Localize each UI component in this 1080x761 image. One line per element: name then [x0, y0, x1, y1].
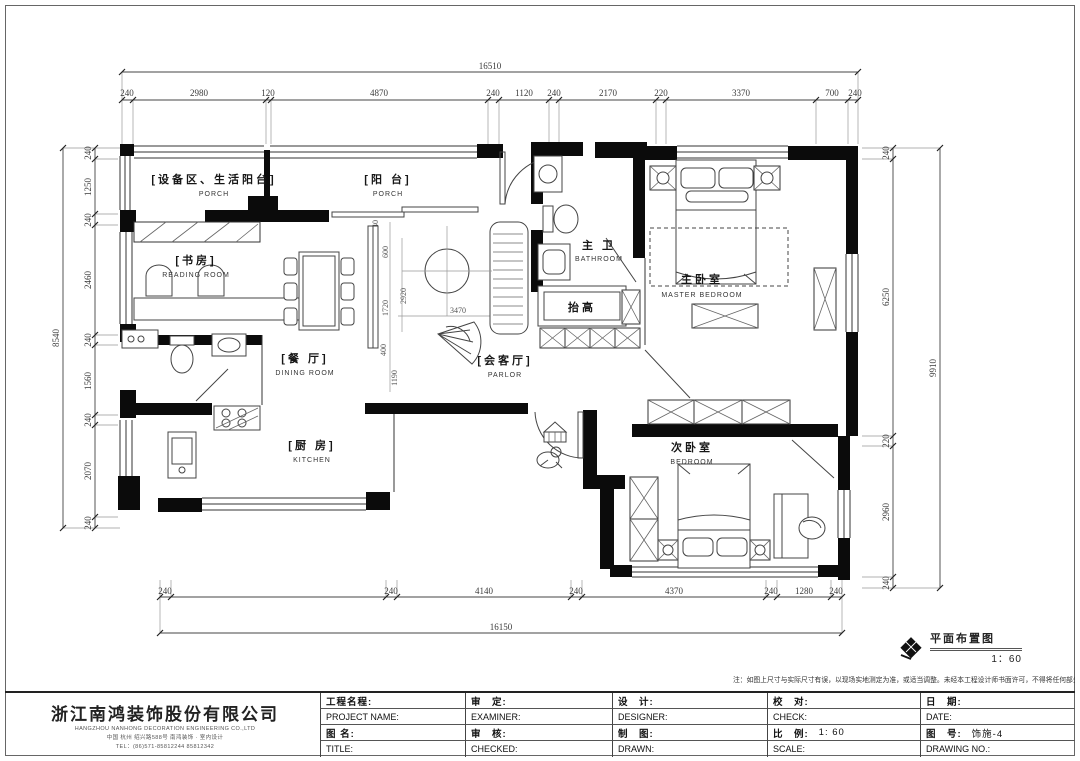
field-drawing-no-value: 饰施-4 [972, 726, 1003, 740]
svg-text:2070: 2070 [83, 462, 93, 481]
svg-text:240: 240 [83, 213, 93, 227]
svg-text:PORCH: PORCH [199, 191, 229, 198]
svg-text:1280: 1280 [795, 586, 814, 596]
master-south-cabinets [648, 400, 790, 424]
svg-text:240: 240 [881, 576, 891, 590]
svg-text:1120: 1120 [515, 88, 533, 98]
dim-total-bottom: 16150 [490, 622, 513, 632]
svg-text:240: 240 [83, 413, 93, 427]
svg-text:240: 240 [120, 88, 134, 98]
sofa [490, 222, 528, 334]
second-bedroom-desk [774, 494, 825, 558]
dim-total-left: 8540 [51, 329, 61, 348]
second-bedroom-wardrobe [630, 477, 658, 561]
storage-x-row [540, 328, 640, 348]
label-kitchen: [厨 房] [288, 438, 335, 452]
field-drawing-no-label: 图 号: [926, 726, 962, 740]
label-master-bath: 主 卫 [582, 238, 616, 252]
label-second-bedroom: 次卧室 [671, 440, 713, 454]
svg-text:120: 120 [261, 88, 275, 98]
svg-text:1250: 1250 [83, 178, 93, 197]
master-side-cabinet [814, 268, 836, 330]
company-block: 浙江南鸿装饰股份有限公司 HANGZHOU NANHONG DECORATION… [5, 693, 320, 757]
raised-platform [538, 286, 640, 348]
second-bed [678, 464, 750, 568]
field-proofread-cn: 校 对: [767, 693, 920, 709]
svg-text:240: 240 [848, 88, 862, 98]
svg-text:240: 240 [83, 333, 93, 347]
svg-text:BATHROOM: BATHROOM [575, 256, 623, 263]
svg-text:PORCH: PORCH [373, 191, 403, 198]
svg-text:2920: 2920 [399, 288, 408, 304]
seal-icon [898, 634, 924, 660]
svg-text:240: 240 [384, 586, 398, 596]
plant-fan [438, 322, 481, 364]
svg-text:240: 240 [486, 88, 500, 98]
field-scale-label: 比 例: [773, 726, 809, 740]
label-parlor: [会客厅] [477, 353, 532, 367]
dining-table [284, 252, 354, 330]
field-designer-en: DESIGNER: [612, 709, 767, 725]
svg-text:400: 400 [379, 344, 388, 356]
field-project-name-cn: 工程名程: [320, 693, 465, 709]
svg-text:240: 240 [881, 146, 891, 160]
svg-text:4870: 4870 [370, 88, 389, 98]
label-raised: 抬高 [568, 300, 596, 314]
label-study: [书房] [175, 253, 216, 267]
dim-total-right: 9910 [928, 359, 938, 378]
coffee-table [402, 226, 492, 316]
field-scale-value: 1: 60 [819, 727, 845, 738]
kitchen-counter [168, 406, 260, 478]
svg-text:240: 240 [764, 586, 778, 596]
company-name-en: HANGZHOU NANHONG DECORATION ENGINEERING … [75, 726, 256, 732]
field-drawing-no-en: DRAWING NO.: [920, 741, 1075, 757]
field-scale-en: SCALE: [767, 741, 920, 757]
label-dining: [餐 厅] [281, 351, 328, 365]
drawing-note: 注：如图上尺寸与实际尺寸有误，以现场实地测定为准，或适当调整。未经本工程设计师书… [733, 674, 1075, 684]
company-tel: TEL：(86)571-85812244 85812342 [116, 742, 214, 750]
company-address: 中国 杭州 绍兴路588号 南鸿装饰 · 室内设计 [107, 733, 224, 741]
stamp-title: 平面布置图 [930, 630, 1022, 651]
field-title-en: TITLE: [320, 741, 465, 757]
svg-text:220: 220 [654, 88, 668, 98]
svg-text:600: 600 [381, 246, 390, 258]
field-drawn-cn: 制 图: [612, 725, 767, 741]
svg-text:1560: 1560 [83, 372, 93, 391]
field-checked-cn: 审 核: [465, 725, 612, 741]
svg-text:240: 240 [83, 516, 93, 530]
svg-text:KITCHEN: KITCHEN [293, 457, 331, 464]
field-drawing-no-cn: 图 号: 饰施-4 [920, 725, 1075, 741]
svg-text:DINING ROOM: DINING ROOM [275, 370, 334, 377]
svg-text:2170: 2170 [599, 88, 618, 98]
stamp-scale: 1：60 [930, 650, 1022, 665]
field-date-en: DATE: [920, 709, 1075, 725]
study-wardrobe [134, 222, 260, 242]
svg-text:READING ROOM: READING ROOM [162, 272, 230, 279]
master-bench [692, 304, 758, 328]
dim-total-top: 16510 [479, 61, 502, 71]
guest-bathroom [122, 330, 246, 373]
svg-text:6250: 6250 [881, 288, 891, 307]
floor-plan-drawing: 16510 240 2980 120 4870 240 1120 240 217… [0, 0, 1080, 690]
field-drawn-en: DRAWN: [612, 741, 767, 757]
field-proofread-en: CHECK: [767, 709, 920, 725]
field-project-name-en: PROJECT NAME: [320, 709, 465, 725]
label-balcony: [阳 台] [364, 172, 411, 186]
field-designer-cn: 设 计: [612, 693, 767, 709]
svg-text:2980: 2980 [190, 88, 209, 98]
svg-text:4140: 4140 [475, 586, 494, 596]
svg-text:MASTER BEDROOM: MASTER BEDROOM [661, 292, 742, 299]
field-examiner-en: EXAMINER: [465, 709, 612, 725]
svg-text:240: 240 [829, 586, 843, 596]
field-checked-en: CHECKED: [465, 741, 612, 757]
svg-text:3470: 3470 [450, 306, 466, 315]
field-title-cn: 图 名: [320, 725, 465, 741]
svg-text:240: 240 [547, 88, 561, 98]
master-bathroom [534, 156, 578, 280]
label-utility-balcony: [设备区、生活阳台] [151, 172, 276, 186]
svg-text:PARLOR: PARLOR [488, 372, 522, 379]
drawing-stamp: 平面布置图 1：60 [898, 628, 1028, 664]
hallway-symbols [537, 422, 566, 468]
svg-text:240: 240 [569, 586, 583, 596]
svg-text:2960: 2960 [881, 503, 891, 522]
svg-text:3370: 3370 [732, 88, 751, 98]
svg-text:700: 700 [825, 88, 839, 98]
svg-text:BEDROOM: BEDROOM [670, 459, 713, 466]
svg-text:1720: 1720 [381, 300, 390, 316]
svg-text:1190: 1190 [390, 370, 399, 386]
title-block: 浙江南鸿装饰股份有限公司 HANGZHOU NANHONG DECORATION… [5, 691, 1075, 757]
svg-text:240: 240 [83, 146, 93, 160]
svg-text:220: 220 [881, 434, 891, 448]
field-examiner-cn: 审 定: [465, 693, 612, 709]
field-date-cn: 日 期: [920, 693, 1075, 709]
svg-text:240: 240 [158, 586, 172, 596]
tv-cabinet [368, 226, 378, 348]
svg-text:2460: 2460 [83, 271, 93, 290]
field-scale-cn: 比 例: 1: 60 [767, 725, 920, 741]
svg-text:4370: 4370 [665, 586, 684, 596]
label-master-bedroom: 主卧室 [681, 272, 723, 286]
company-name: 浙江南鸿装饰股份有限公司 [51, 700, 279, 725]
